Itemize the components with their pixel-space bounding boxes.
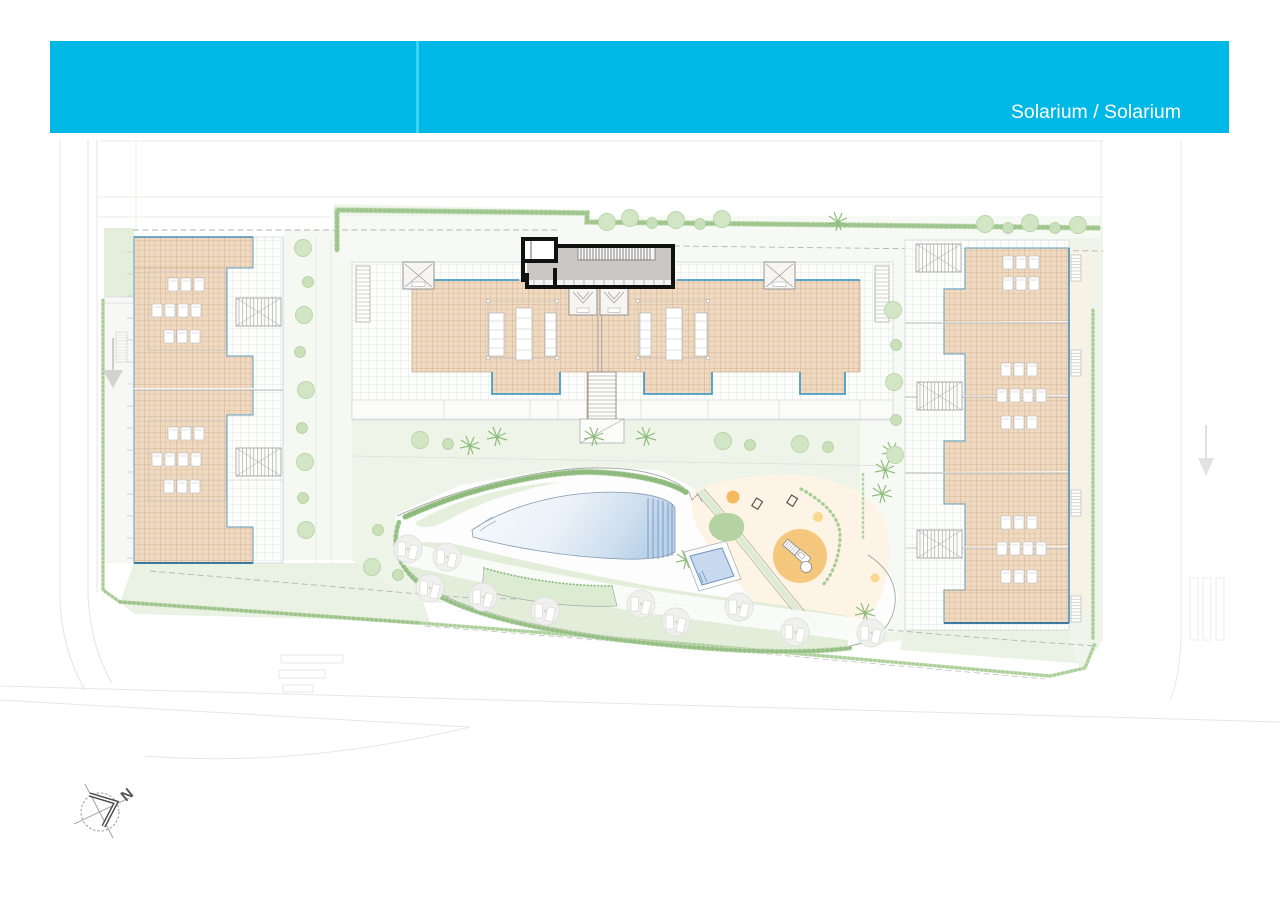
svg-text:Solarium / Solarium: Solarium / Solarium bbox=[1011, 101, 1181, 123]
